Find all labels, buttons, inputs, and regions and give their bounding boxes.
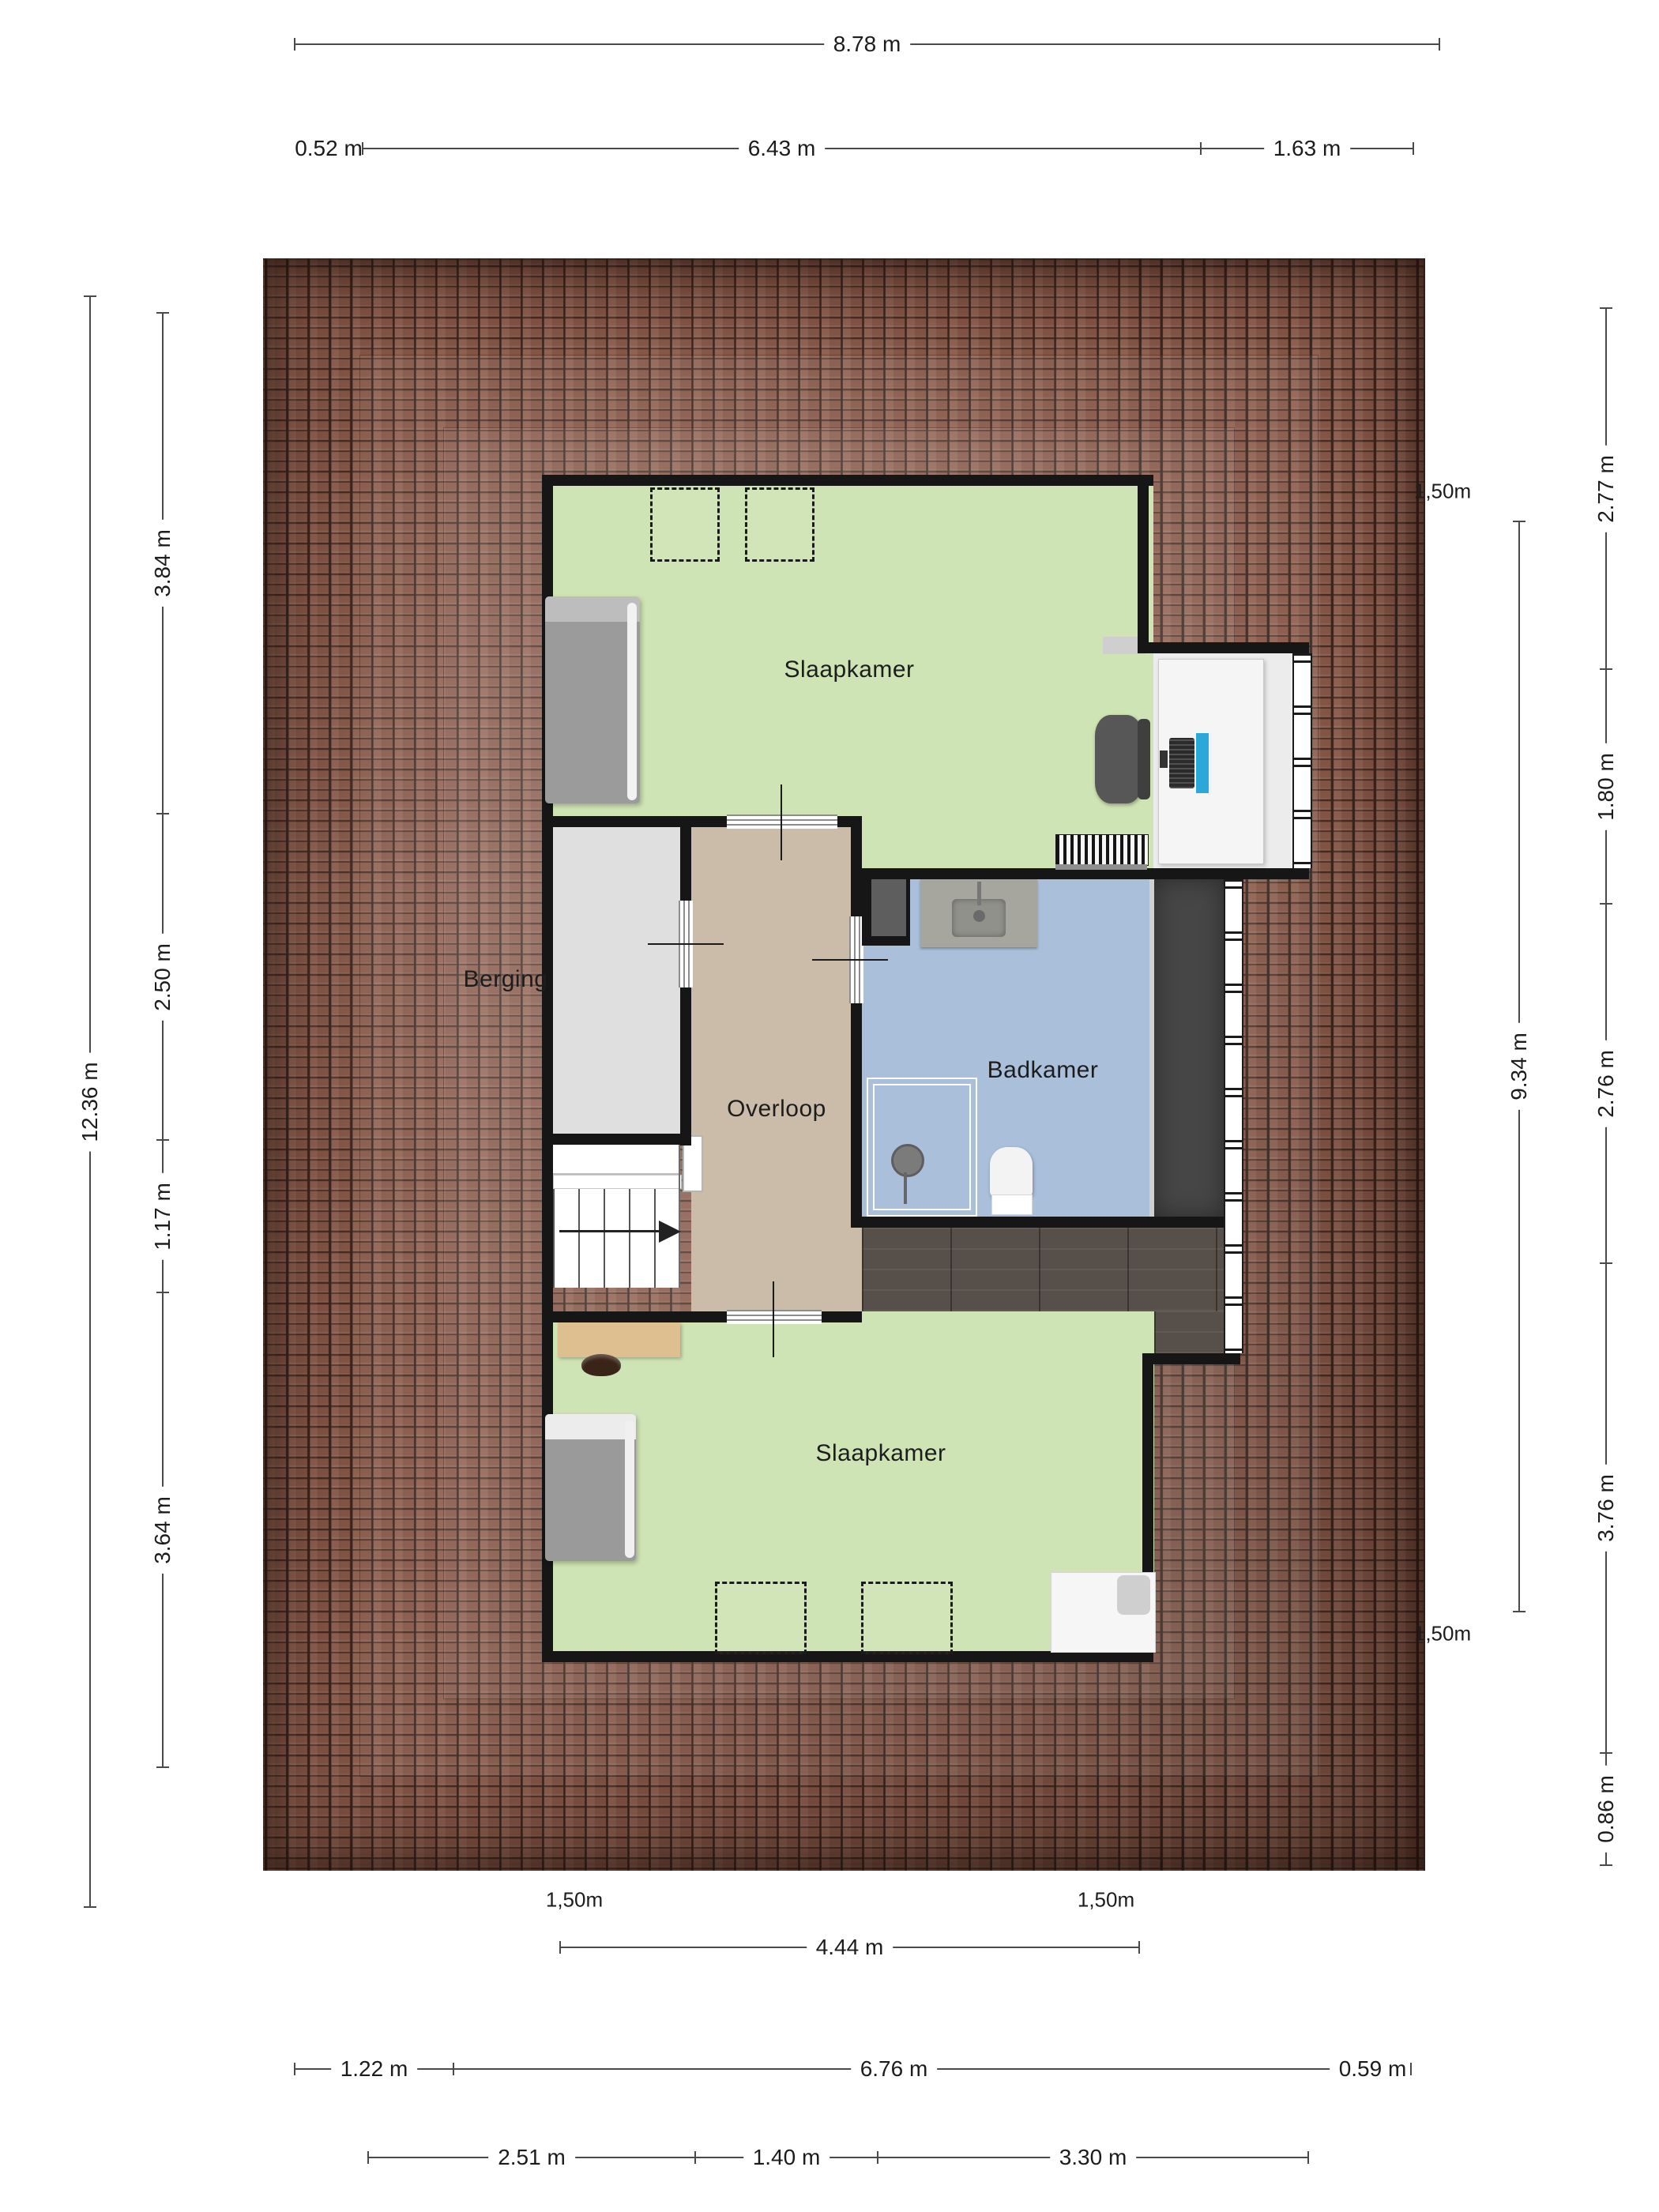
wall	[553, 816, 727, 827]
skylight	[861, 1582, 953, 1654]
dimension-right-segment: 2.77 m	[1605, 308, 1607, 669]
dimension-label: 2.51 m	[488, 2143, 575, 2172]
room-label-bedroom-top: Slaapkamer	[784, 656, 914, 683]
desk-accessory	[1160, 750, 1168, 768]
door-opening-tick	[781, 784, 782, 860]
door-opening-tick	[648, 943, 724, 945]
dimension-bottom-interior-segment: 2.51 m	[368, 2157, 695, 2158]
wall	[851, 1003, 862, 1228]
wall	[1138, 475, 1149, 653]
headroom-label: 1,50m	[546, 1888, 603, 1913]
dimension-bottom-segment: 6.76 m	[453, 2068, 1334, 2070]
wall	[542, 1311, 727, 1322]
room-label-storage: Berging	[464, 966, 548, 993]
dimension-right-segment: 3.76 m	[1605, 1263, 1607, 1753]
dimension-bottom-inner: 4.44 m	[560, 1947, 1139, 1948]
storage-floor	[553, 827, 680, 1134]
headroom-label: 1,50m	[1414, 480, 1471, 504]
dimension-label: 1.80 m	[1592, 743, 1620, 830]
dimension-label: 9.34 m	[1505, 1023, 1533, 1110]
duct-closet	[862, 879, 910, 946]
landing-floor	[691, 827, 862, 1311]
window-right-bathroom	[1224, 879, 1243, 1353]
stairs-direction-arrow-icon	[659, 1221, 681, 1243]
wall	[822, 1311, 862, 1322]
dimension-label: 2.77 m	[1592, 446, 1620, 532]
dimension-label: 8.78 m	[824, 30, 911, 58]
dimension-label: 0.59 m	[1330, 2055, 1416, 2083]
dimension-label: 1.63 m	[1264, 134, 1351, 163]
dimension-label: 6.76 m	[851, 2055, 938, 2083]
cabinet-cushion	[1117, 1575, 1150, 1615]
bed	[545, 1414, 636, 1561]
wall	[851, 1217, 1240, 1228]
laptop	[1169, 738, 1194, 788]
faucet-icon	[977, 882, 981, 905]
dimension-label: 2.76 m	[1592, 1040, 1620, 1127]
wall	[851, 816, 862, 916]
dimension-right-segment: 1.80 m	[1605, 669, 1607, 904]
dimension-left-total: 12.36 m	[89, 296, 91, 1907]
dimension-top-segment: 6.43 m	[363, 148, 1201, 149]
wood-floor-strip	[1154, 1311, 1224, 1353]
wall	[680, 816, 691, 901]
stairs-direction-arrow-icon	[559, 1230, 660, 1232]
skylight	[715, 1582, 807, 1654]
headroom-label: 1,50m	[1078, 1888, 1134, 1913]
skylight	[650, 487, 720, 562]
wall	[542, 475, 1153, 486]
office-chair-back	[1138, 719, 1150, 799]
dimension-label: 12.36 m	[76, 1052, 104, 1151]
shower-hose	[904, 1172, 907, 1204]
dimension-label: 2.50 m	[149, 934, 177, 1021]
door-opening-tick	[773, 1281, 774, 1357]
window-right-nook	[1292, 653, 1312, 868]
wall	[542, 1134, 691, 1145]
headroom-label: 1,50m	[1414, 1622, 1471, 1646]
stairs-edge-line	[679, 1145, 680, 1288]
bed	[545, 596, 640, 803]
toilet-tank	[991, 1194, 1033, 1215]
dimension-top-total: 8.78 m	[295, 43, 1439, 45]
door-bedroom-bottom	[727, 1310, 822, 1324]
room-label-landing: Overloop	[727, 1096, 826, 1123]
room-label-bedroom-bottom: Slaapkamer	[815, 1440, 946, 1467]
dimension-right-total: 9.34 m	[1518, 521, 1520, 1612]
shower-head-icon	[891, 1144, 924, 1177]
dimension-label: 6.43 m	[739, 134, 826, 163]
wall	[542, 1651, 1153, 1662]
shower	[867, 1078, 977, 1217]
dimension-left-segment: 3.84 m	[162, 313, 164, 814]
skylight	[745, 487, 814, 562]
dimension-right-segment: 0.86 m	[1605, 1753, 1607, 1865]
dimension-bottom-segment: 0.59 m	[1334, 2068, 1411, 2070]
dimension-label: 3.30 m	[1050, 2143, 1137, 2172]
stairs-landing-edge	[553, 1175, 682, 1189]
radiator-shadow	[1055, 864, 1147, 870]
dimension-bottom-interior-segment: 3.30 m	[878, 2157, 1308, 2158]
dimension-top-segment: 0.52 m	[295, 148, 363, 149]
floorplan-page: Slaapkamer Berging Overloop Badkamer Sla…	[0, 0, 1659, 2212]
dimension-left-segment: 1.17 m	[162, 1140, 164, 1292]
room-label-bathroom: Badkamer	[987, 1057, 1099, 1084]
dimension-label: 0.52 m	[285, 134, 372, 163]
dimension-label: 3.84 m	[149, 520, 177, 607]
dimension-bottom-segment: 1.22 m	[295, 2068, 453, 2070]
dimension-label: 0.86 m	[1592, 1766, 1620, 1853]
dimension-top-segment: 1.63 m	[1201, 148, 1413, 149]
sink-drain-icon	[973, 910, 985, 922]
dimension-label: 1.17 m	[149, 1173, 177, 1260]
office-chair	[1095, 715, 1142, 803]
dimension-label: 3.64 m	[149, 1487, 177, 1574]
dimension-label: 3.76 m	[1592, 1465, 1620, 1552]
door-opening-tick	[812, 959, 888, 961]
toilet	[990, 1147, 1033, 1198]
dimension-label: 1.40 m	[743, 2143, 830, 2172]
wall	[680, 987, 691, 1145]
door-bedroom-top	[727, 814, 837, 829]
radiator	[1055, 834, 1149, 866]
wall	[1142, 642, 1309, 653]
dimension-right-segment: 2.76 m	[1605, 904, 1607, 1263]
wall	[1142, 1353, 1240, 1364]
dimension-left-segment: 3.64 m	[162, 1292, 164, 1767]
wood-floor-strip	[862, 1228, 1224, 1311]
dimension-label: 4.44 m	[807, 1933, 893, 1962]
wardrobe	[1154, 879, 1224, 1217]
wall	[862, 868, 1309, 879]
desk	[558, 1322, 680, 1357]
dimension-label: 1.22 m	[331, 2055, 418, 2083]
dimension-left-segment: 2.50 m	[162, 814, 164, 1140]
monitor	[1196, 733, 1212, 793]
dimension-bottom-interior-segment: 1.40 m	[695, 2157, 878, 2158]
stool	[581, 1354, 621, 1376]
stairs-landing	[553, 1145, 680, 1175]
